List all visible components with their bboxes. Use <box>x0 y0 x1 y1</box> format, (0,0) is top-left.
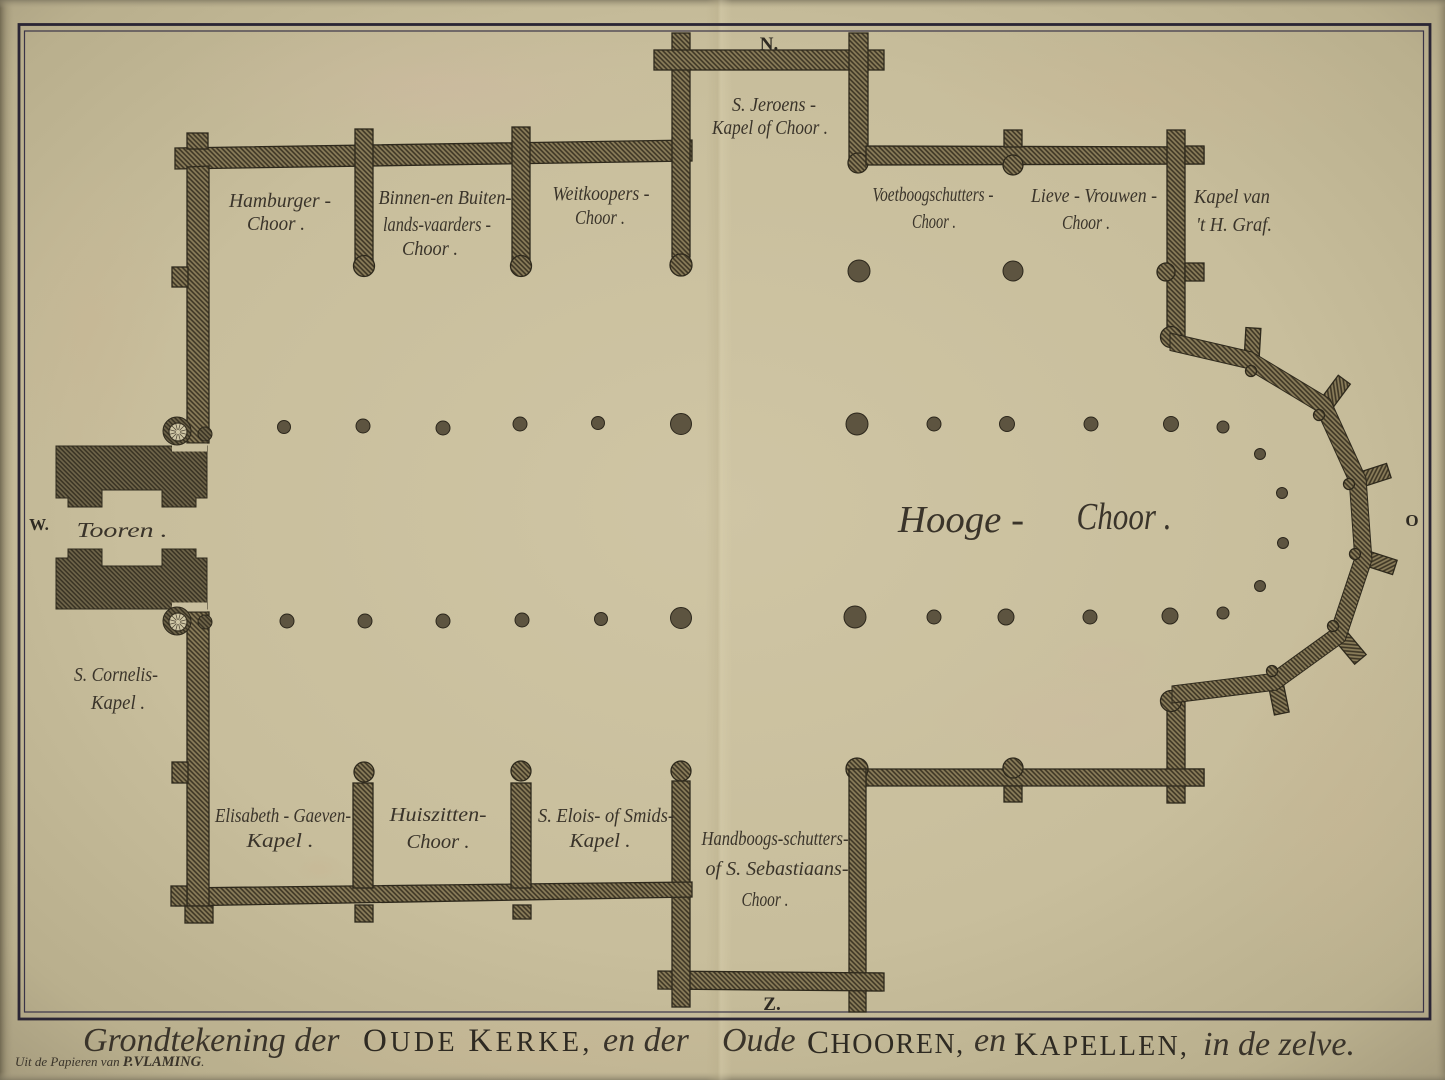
svg-text:O: O <box>1405 511 1418 530</box>
svg-text:N.: N. <box>760 34 778 55</box>
svg-text:CHOOREN,: CHOOREN, <box>807 1025 965 1061</box>
svg-text:OUDE KERKE,: OUDE KERKE, <box>363 1023 593 1059</box>
svg-text:S. Elois- of Smids-: S. Elois- of Smids- <box>538 805 674 827</box>
svg-text:Hamburger -: Hamburger - <box>228 190 331 212</box>
svg-text:of S. Sebastiaans-: of S. Sebastiaans- <box>706 858 849 880</box>
svg-text:Choor .: Choor . <box>247 213 305 235</box>
svg-text:S. Cornelis-: S. Cornelis- <box>74 664 158 686</box>
svg-text:Elisabeth - Gaeven-: Elisabeth - Gaeven- <box>214 805 351 827</box>
svg-text:Choor .: Choor . <box>407 831 470 853</box>
svg-text:Tooren .: Tooren . <box>77 518 168 542</box>
svg-text:W.: W. <box>29 515 49 534</box>
svg-text:Kapel .: Kapel . <box>245 830 313 852</box>
svg-text:Kapel .: Kapel . <box>568 830 630 852</box>
svg-text:Kapel .: Kapel . <box>90 692 145 714</box>
svg-text:Kapel of Choor .: Kapel of Choor . <box>711 117 828 139</box>
svg-text:Choor .: Choor . <box>402 238 458 260</box>
svg-text:Z.: Z. <box>763 994 780 1015</box>
svg-text:Choor .: Choor . <box>1062 212 1110 234</box>
svg-text:Kapel van: Kapel van <box>1193 186 1270 208</box>
svg-text:Choor .: Choor . <box>912 211 956 233</box>
svg-text:Huiszitten-: Huiszitten- <box>388 804 486 826</box>
svg-text:KAPELLEN,: KAPELLEN, <box>1014 1027 1189 1063</box>
svg-text:Oude: Oude <box>722 1022 796 1059</box>
svg-text:Uit de Papieren van P.VLAMING.: Uit de Papieren van P.VLAMING. <box>15 1054 204 1070</box>
svg-text:Handboogs-schutters-: Handboogs-schutters- <box>701 828 849 850</box>
svg-text:en der: en der <box>603 1022 690 1059</box>
svg-text:lands-vaarders -: lands-vaarders - <box>383 214 491 236</box>
svg-text:in de zelve.: in de zelve. <box>1203 1026 1355 1063</box>
svg-text:Voetboogschutters -: Voetboogschutters - <box>873 184 994 206</box>
svg-text:Choor .: Choor . <box>575 207 625 229</box>
svg-text:S. Jeroens -: S. Jeroens - <box>732 94 816 116</box>
svg-text:en: en <box>974 1022 1006 1059</box>
svg-text:Choor .: Choor . <box>1077 496 1172 538</box>
svg-text:Choor .: Choor . <box>742 889 789 911</box>
svg-text:'t H. Graf.: 't H. Graf. <box>1196 214 1272 236</box>
svg-text:Lieve - Vrouwen -: Lieve - Vrouwen - <box>1030 185 1157 207</box>
svg-text:Weitkoopers -: Weitkoopers - <box>553 183 650 205</box>
svg-text:Binnen-en Buiten-: Binnen-en Buiten- <box>379 187 512 209</box>
svg-text:Hooge -: Hooge - <box>897 499 1024 541</box>
